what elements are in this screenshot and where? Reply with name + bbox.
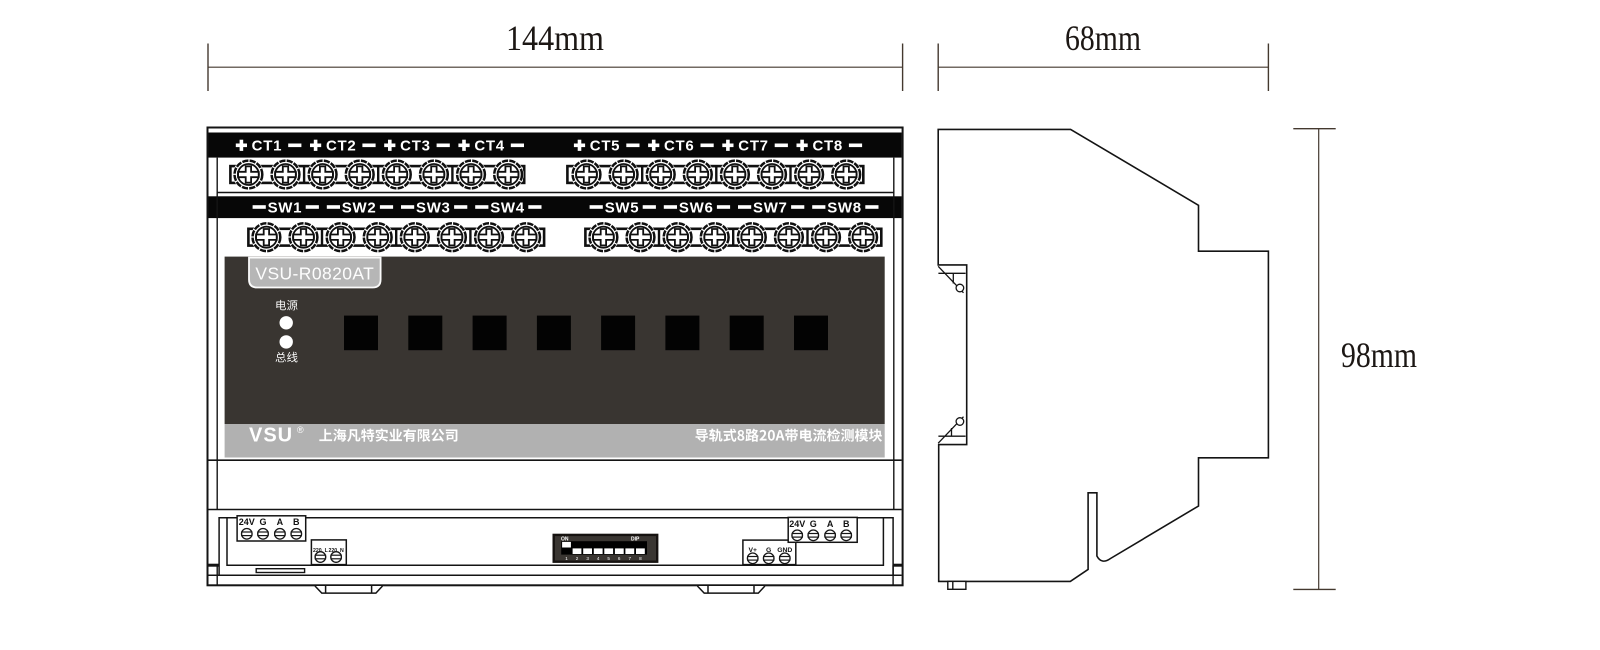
- svg-text:5: 5: [607, 556, 610, 561]
- svg-text:SW2: SW2: [342, 200, 377, 217]
- svg-text:B: B: [293, 517, 300, 527]
- svg-text:SW3: SW3: [416, 200, 451, 217]
- svg-text:1: 1: [565, 556, 568, 561]
- svg-text:G: G: [259, 517, 266, 527]
- svg-text:98mm: 98mm: [1341, 335, 1417, 375]
- svg-text:VSU: VSU: [249, 425, 293, 447]
- svg-text:8: 8: [639, 556, 642, 561]
- svg-text:24V: 24V: [239, 517, 255, 527]
- svg-text:A: A: [827, 519, 834, 529]
- svg-text:B: B: [843, 519, 850, 529]
- svg-text:DIP: DIP: [631, 536, 640, 542]
- svg-text:SW4: SW4: [490, 200, 525, 217]
- svg-text:68mm: 68mm: [1065, 18, 1141, 58]
- svg-text:®: ®: [297, 425, 304, 435]
- svg-text:SW5: SW5: [605, 200, 640, 217]
- svg-text:2: 2: [576, 556, 579, 561]
- svg-text:SW6: SW6: [679, 200, 714, 217]
- svg-text:7: 7: [629, 556, 632, 561]
- svg-text:3: 3: [586, 556, 589, 561]
- svg-text:VSU-R0820AT: VSU-R0820AT: [255, 264, 374, 284]
- svg-text:CT8: CT8: [812, 138, 842, 155]
- svg-text:6: 6: [618, 556, 621, 561]
- svg-text:CT4: CT4: [474, 138, 504, 155]
- svg-text:CT1: CT1: [252, 138, 282, 155]
- svg-text:CT2: CT2: [326, 138, 356, 155]
- svg-text:CT5: CT5: [590, 138, 620, 155]
- svg-text:4: 4: [597, 556, 600, 561]
- svg-text:SW1: SW1: [268, 200, 303, 217]
- svg-text:144mm: 144mm: [506, 18, 604, 58]
- svg-text:G: G: [810, 519, 817, 529]
- svg-text:ON: ON: [561, 536, 569, 542]
- svg-text:A: A: [277, 517, 284, 527]
- svg-text:24V: 24V: [789, 519, 805, 529]
- svg-text:CT6: CT6: [664, 138, 694, 155]
- svg-text:SW7: SW7: [753, 200, 788, 217]
- svg-text:SW8: SW8: [827, 200, 862, 217]
- svg-text:CT7: CT7: [738, 138, 768, 155]
- svg-text:CT3: CT3: [400, 138, 430, 155]
